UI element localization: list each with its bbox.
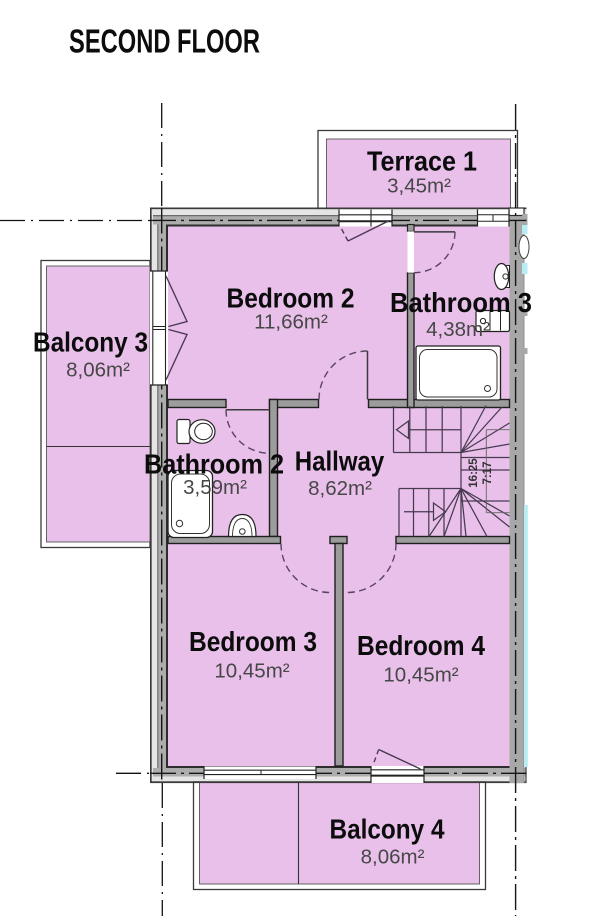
svg-text:8,62m²: 8,62m²	[308, 477, 372, 500]
svg-text:Bedroom 4: Bedroom 4	[357, 630, 485, 661]
svg-text:Balcony 4: Balcony 4	[330, 814, 445, 845]
svg-text:8,06m²: 8,06m²	[66, 359, 130, 382]
svg-text:Bedroom 2: Bedroom 2	[227, 283, 355, 314]
svg-text:10,45m²: 10,45m²	[214, 660, 289, 683]
svg-text:Bedroom 3: Bedroom 3	[189, 626, 317, 657]
svg-text:8,06m²: 8,06m²	[361, 846, 425, 869]
svg-text:11,66m²: 11,66m²	[254, 311, 328, 334]
svg-text:Bathroom 3: Bathroom 3	[390, 287, 532, 318]
svg-text:Balcony 3: Balcony 3	[33, 327, 148, 358]
svg-text:Hallway: Hallway	[295, 446, 385, 477]
svg-text:4,38m²: 4,38m²	[426, 318, 490, 341]
svg-text:16:25: 16:25	[468, 458, 480, 488]
svg-text:7:17: 7:17	[482, 461, 494, 484]
svg-text:10,45m²: 10,45m²	[383, 664, 458, 687]
svg-text:Bathroom 2: Bathroom 2	[144, 449, 284, 480]
svg-text:Terrace 1: Terrace 1	[367, 146, 477, 177]
svg-text:3,59m²: 3,59m²	[183, 476, 247, 499]
svg-text:3,45m²: 3,45m²	[387, 175, 451, 198]
svg-text:SECOND FLOOR: SECOND FLOOR	[69, 23, 260, 60]
